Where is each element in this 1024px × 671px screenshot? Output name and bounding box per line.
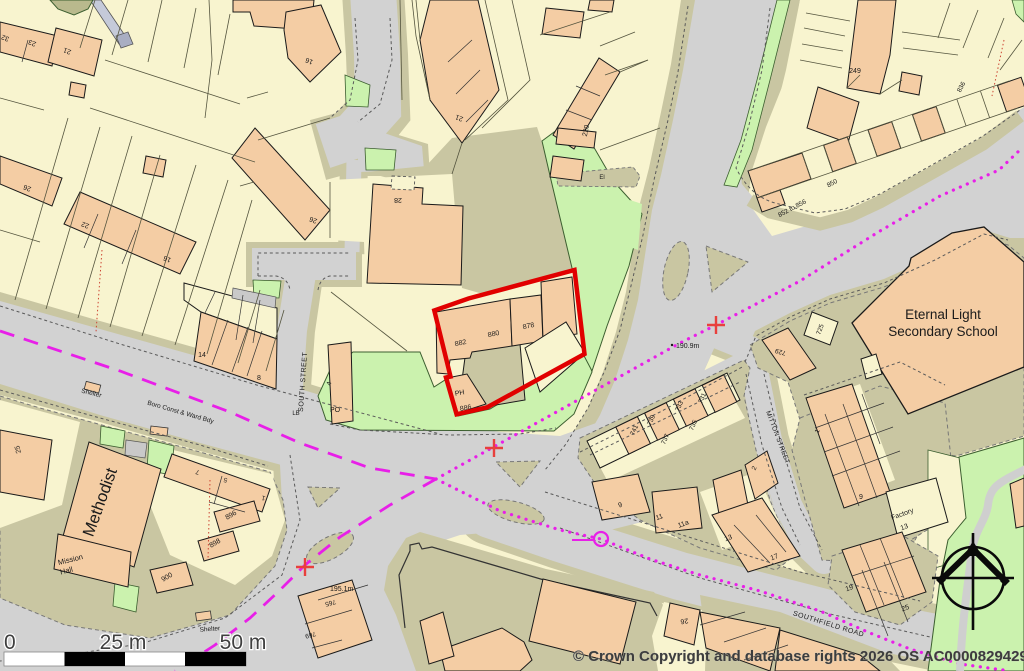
svg-text:El: El [599,175,604,181]
svg-text:25 m: 25 m [100,631,147,654]
svg-text:© Crown Copyright and database: © Crown Copyright and database rights 20… [573,648,1024,665]
svg-text:Secondary School: Secondary School [888,324,998,339]
svg-text:190.9m: 190.9m [676,343,700,350]
svg-text:0: 0 [4,631,16,654]
svg-text:Shelter: Shelter [199,625,221,633]
svg-text:Eternal Light: Eternal Light [905,307,981,322]
svg-text:8: 8 [257,375,261,382]
svg-text:PO: PO [330,407,341,414]
svg-text:14: 14 [198,352,206,359]
svg-text:9: 9 [859,494,863,501]
svg-text:195.1m: 195.1m [330,586,354,593]
svg-text:249: 249 [849,68,861,75]
svg-text:26: 26 [680,616,689,624]
svg-text:28: 28 [394,196,402,203]
svg-text:LB: LB [292,411,299,417]
svg-text:50 m: 50 m [220,631,267,654]
